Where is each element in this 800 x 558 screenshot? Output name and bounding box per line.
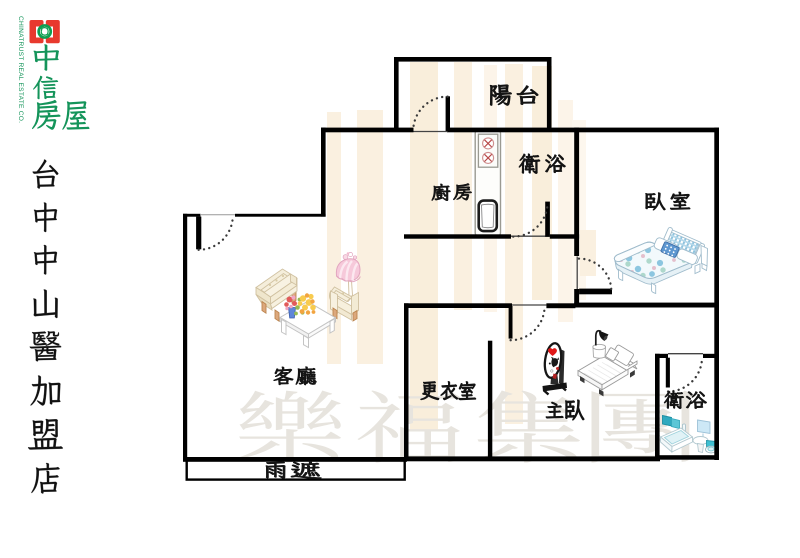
svg-text:CHINATRUST REAL ESTATE CO.: CHINATRUST REAL ESTATE CO. — [17, 16, 24, 123]
